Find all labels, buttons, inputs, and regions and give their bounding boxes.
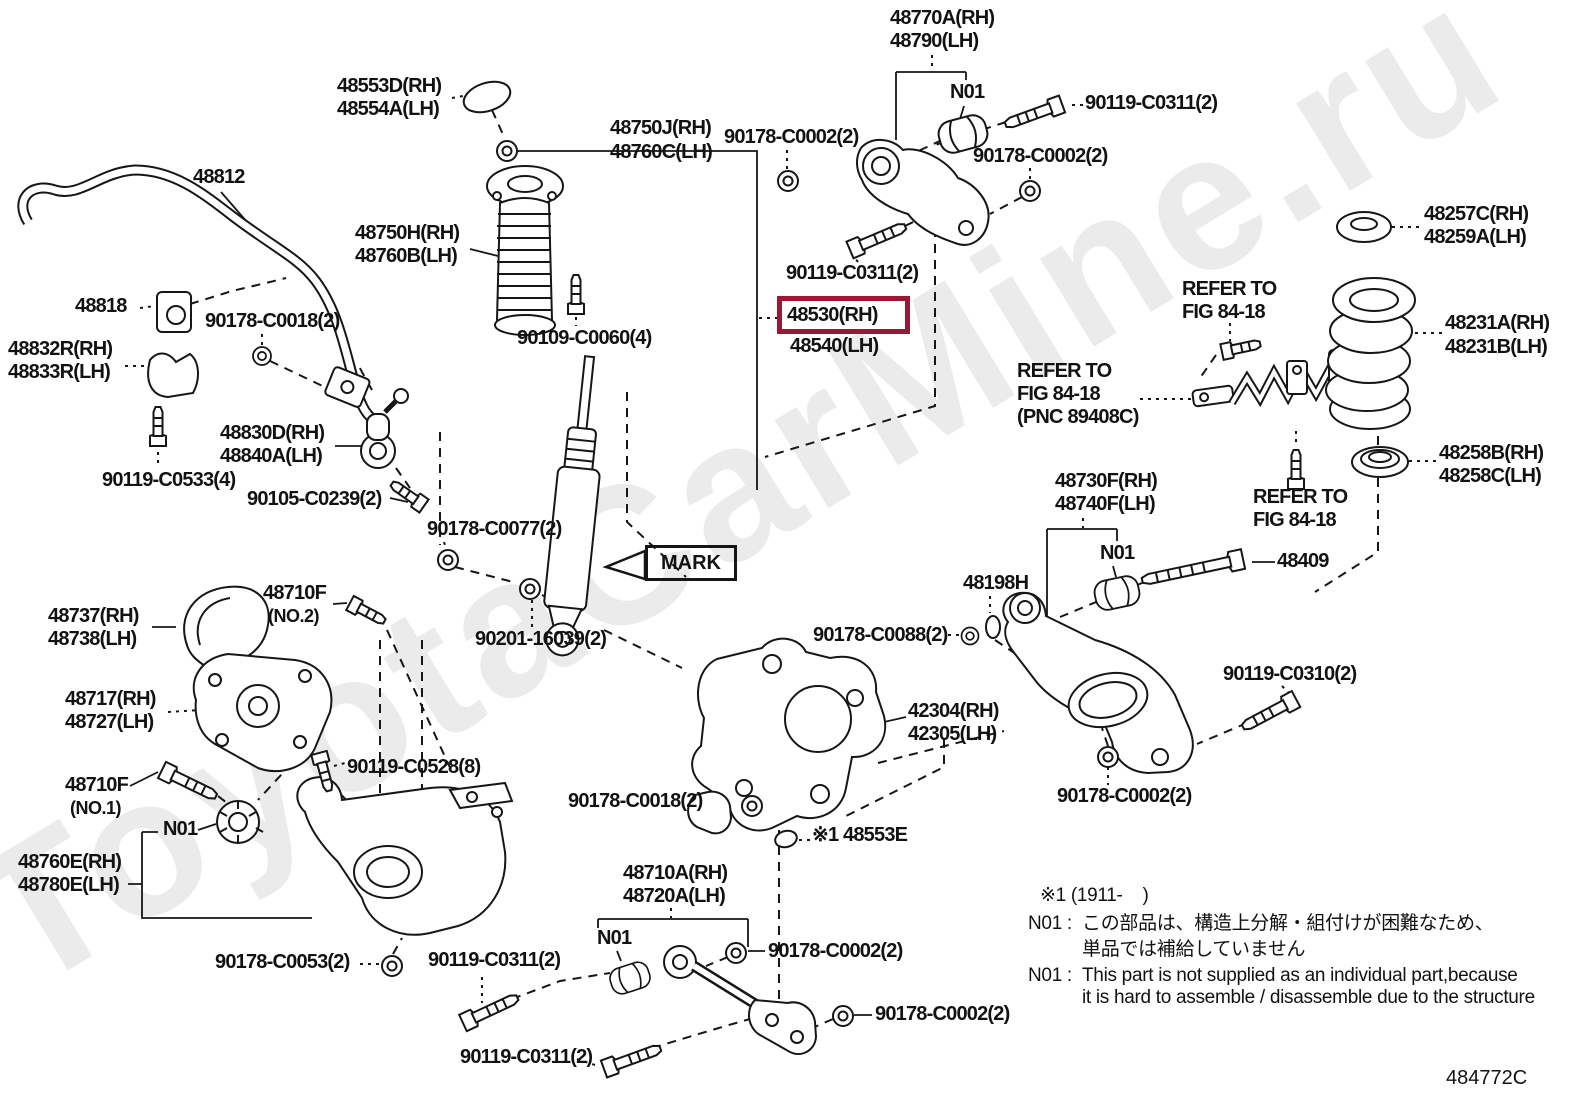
note-line: 単品では補給していません	[1082, 940, 1305, 960]
part-label: REFER TO	[1253, 487, 1347, 508]
part-label: N01	[1100, 543, 1134, 564]
part-label: N01	[597, 928, 631, 949]
part-label: 48540(LH)	[790, 336, 878, 357]
note-line: N01 :	[1028, 914, 1072, 934]
part-label: 48790(LH)	[890, 31, 978, 52]
part-label: 90178-C0002(2)	[1057, 786, 1191, 807]
part-label: 48710F	[65, 775, 128, 796]
part-label: 48258B(RH)	[1439, 443, 1543, 464]
part-label: 48554A(LH)	[337, 99, 439, 120]
part-label: 48760E(RH)	[18, 852, 121, 873]
part-label: (PNC 89408C)	[1017, 407, 1139, 428]
note-line: it is hard to assemble / disassemble due…	[1082, 988, 1535, 1008]
part-label: 90119-C0310(2)	[1223, 664, 1356, 685]
part-label: 90119-C0311(2)	[428, 950, 560, 971]
part-label: 48750H(RH)	[355, 223, 459, 244]
part-label: 90178-C0002(2)	[973, 146, 1107, 167]
part-label: 48760B(LH)	[355, 246, 457, 267]
highlighted-part-label: 48530(RH)	[777, 296, 910, 334]
part-label: 48832R(RH)	[8, 339, 112, 360]
part-label: 48710A(RH)	[623, 863, 727, 884]
part-label: 48780E(LH)	[18, 875, 119, 896]
part-label: 42305(LH)	[908, 724, 996, 745]
part-label: N01	[163, 819, 197, 840]
part-label: 90119-C0311(2)	[460, 1047, 592, 1068]
part-label: 42304(RH)	[908, 701, 999, 722]
note-line: N01 :	[1028, 966, 1072, 986]
part-label: ※1 48553E	[812, 825, 907, 846]
part-label: 48770A(RH)	[890, 8, 994, 29]
figure-code: 484772C	[1446, 1068, 1527, 1089]
part-label: 48830D(RH)	[220, 423, 324, 444]
part-label: 90178-C0088(2)	[813, 625, 947, 646]
part-label: FIG 84-18	[1182, 302, 1265, 323]
part-label: 90178-C0002(2)	[875, 1004, 1009, 1025]
part-label: 90119-C0528(8)	[347, 757, 480, 778]
note-line: This part is not supplied as an individu…	[1082, 966, 1518, 986]
part-label: 48259A(LH)	[1424, 227, 1526, 248]
part-label: FIG 84-18	[1017, 384, 1100, 405]
label-layer: 48770A(RH)48790(LH)N0190119-C0311(2)4855…	[0, 0, 1592, 1099]
part-label: 90119-C0533(4)	[102, 470, 235, 491]
part-label: 48738(LH)	[48, 629, 136, 650]
part-label: 48231A(RH)	[1445, 313, 1549, 334]
part-label: 48840A(LH)	[220, 446, 322, 467]
part-label: 48812	[193, 167, 245, 188]
part-label: 48737(RH)	[48, 606, 139, 627]
part-label: 48198H	[963, 573, 1028, 594]
part-label: 90109-C0060(4)	[517, 328, 651, 349]
part-label: 90178-C0002(2)	[724, 127, 858, 148]
part-label: 90178-C0053(2)	[215, 952, 349, 973]
part-label: 48818	[75, 296, 127, 317]
part-sublabel: (NO.1)	[70, 799, 121, 818]
part-label: 90178-C0018(2)	[568, 791, 702, 812]
part-label: 48833R(LH)	[8, 362, 110, 383]
part-label: 48257C(RH)	[1424, 204, 1528, 225]
mark-callout: MARK	[645, 545, 737, 581]
part-label: 48409	[1277, 551, 1329, 572]
part-label: 48750J(RH)	[610, 118, 711, 139]
part-label: 90119-C0311(2)	[786, 263, 918, 284]
part-label: 48717(RH)	[65, 689, 156, 710]
part-label: 90178-C0002(2)	[768, 941, 902, 962]
part-label: 48258C(LH)	[1439, 466, 1541, 487]
part-sublabel: (NO.2)	[268, 607, 319, 626]
part-label: 90105-C0239(2)	[247, 489, 381, 510]
part-label: 48740F(LH)	[1055, 494, 1155, 515]
part-label: 90201-16039(2)	[475, 629, 606, 650]
part-label: 90119-C0311(2)	[1085, 93, 1217, 114]
note-line: ※1 (1911- )	[1040, 886, 1149, 906]
part-label: 48553D(RH)	[337, 76, 441, 97]
part-label: REFER TO	[1017, 361, 1111, 382]
part-label: REFER TO	[1182, 279, 1276, 300]
part-label: 90178-C0018(2)	[205, 311, 339, 332]
note-line: この部品は、構造上分解・組付けが困難なため、	[1082, 914, 1493, 934]
part-label: 48730F(RH)	[1055, 471, 1157, 492]
part-label: 48720A(LH)	[623, 886, 725, 907]
part-label: 90178-C0077(2)	[427, 519, 561, 540]
part-label: N01	[950, 82, 984, 103]
part-label: 48231B(LH)	[1445, 337, 1547, 358]
part-label: 48710F	[263, 583, 326, 604]
part-label: FIG 84-18	[1253, 510, 1336, 531]
part-label: 48760C(LH)	[610, 142, 712, 163]
part-label: 48727(LH)	[65, 712, 153, 733]
